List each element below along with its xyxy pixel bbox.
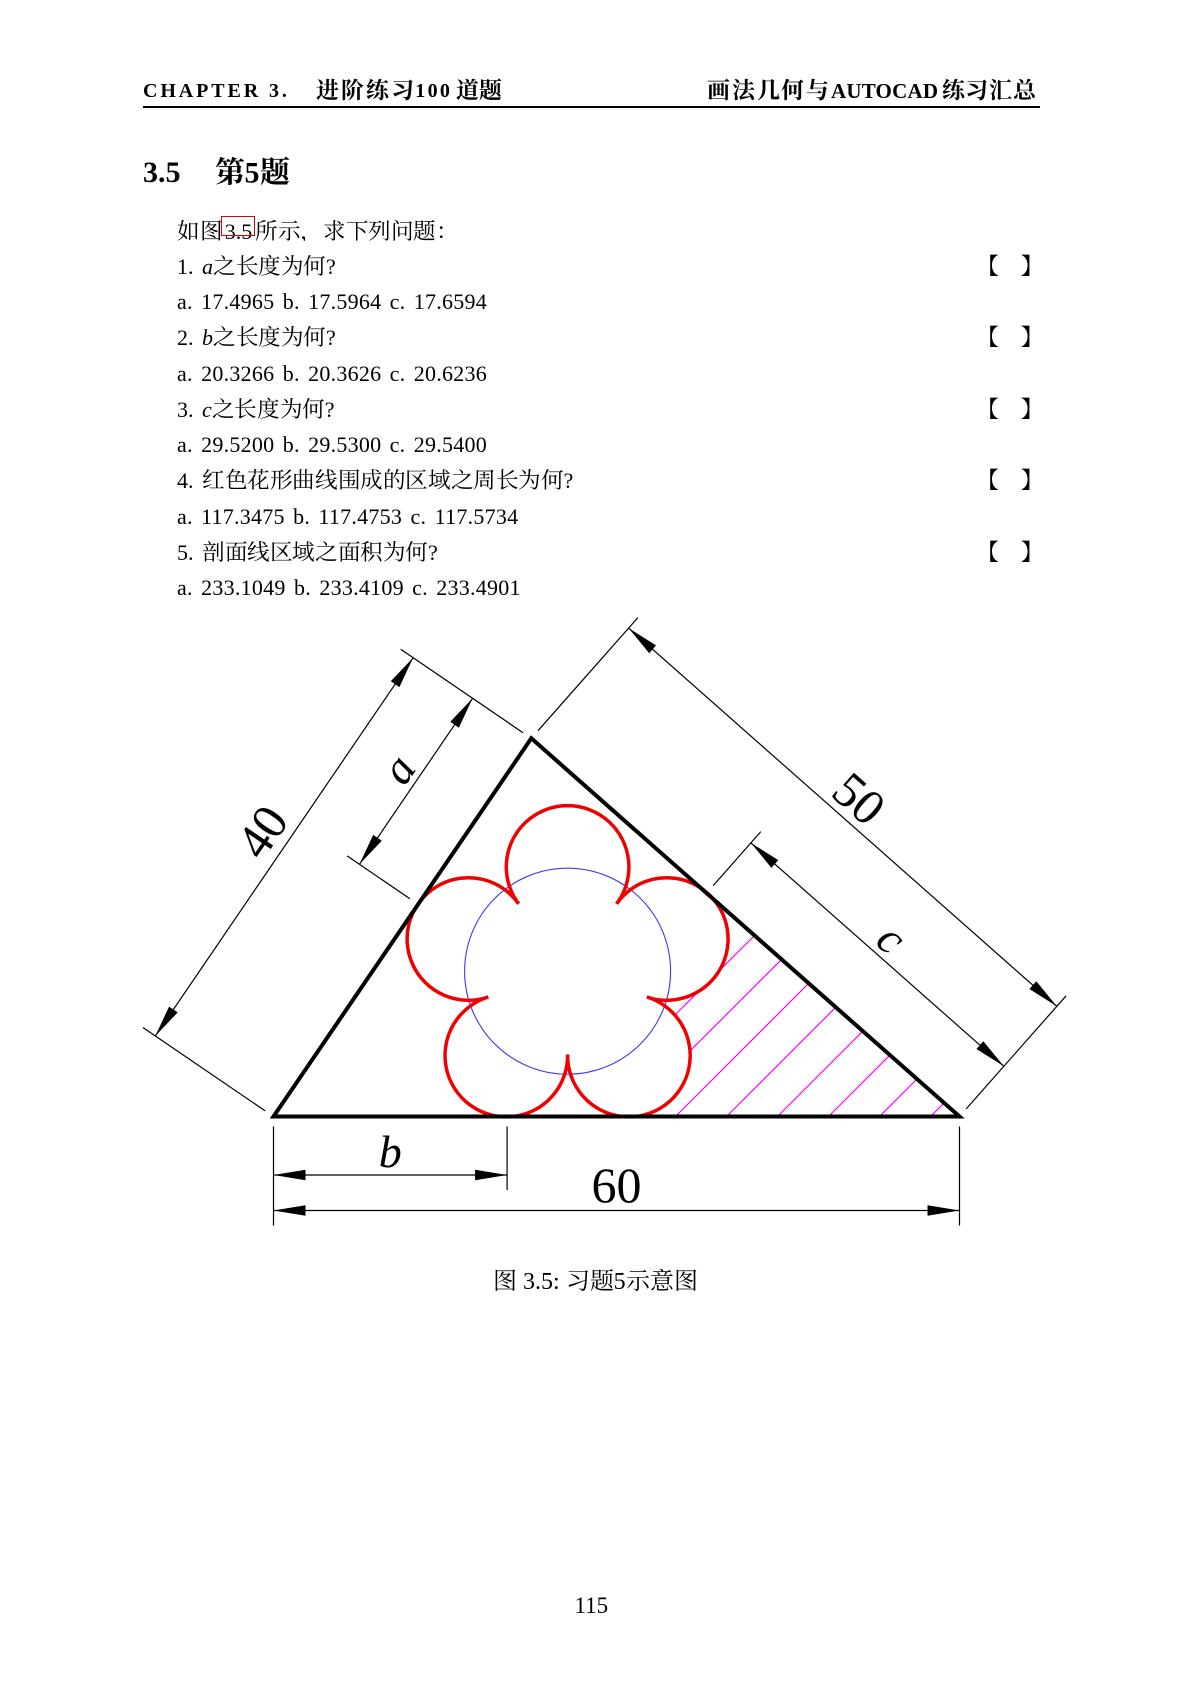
svg-text:a: a (370, 745, 425, 793)
svg-text:40: 40 (225, 795, 299, 868)
svg-text:b: b (379, 1126, 402, 1177)
svg-text:c: c (867, 912, 916, 964)
svg-text:60: 60 (592, 1157, 642, 1213)
svg-text:50: 50 (822, 761, 897, 836)
